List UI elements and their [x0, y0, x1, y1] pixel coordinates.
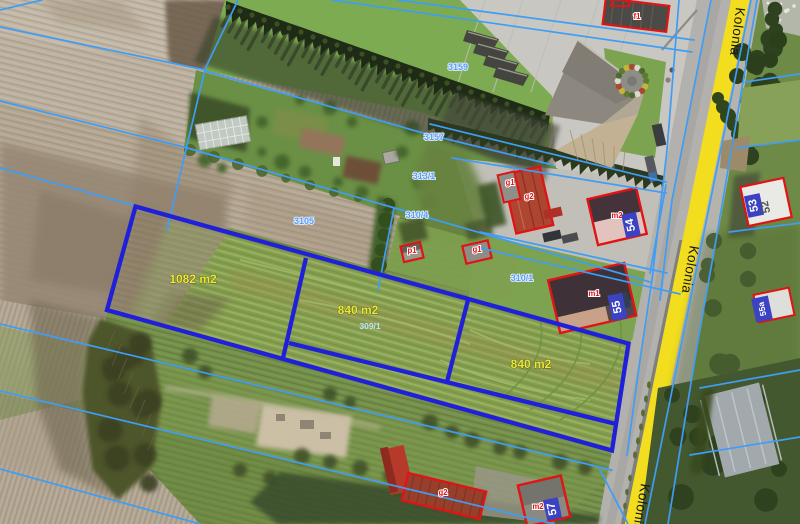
svg-text:840 m2: 840 m2 — [338, 303, 379, 317]
svg-text:3105: 3105 — [294, 216, 314, 226]
svg-text:m2: m2 — [532, 502, 544, 511]
svg-text:g2: g2 — [438, 488, 448, 497]
svg-text:3159: 3159 — [448, 62, 468, 72]
svg-text:f1: f1 — [634, 12, 642, 21]
svg-text:1082 m2: 1082 m2 — [169, 272, 217, 286]
svg-text:m1: m1 — [588, 289, 600, 298]
svg-text:g1: g1 — [505, 178, 515, 187]
svg-text:3157: 3157 — [424, 132, 444, 142]
svg-text:310/4: 310/4 — [406, 210, 429, 220]
svg-text:52: 52 — [759, 200, 773, 214]
svg-text:310/1: 310/1 — [511, 273, 534, 283]
svg-text:g2: g2 — [524, 192, 534, 201]
svg-text:840 m2: 840 m2 — [511, 357, 552, 371]
svg-text:p1: p1 — [407, 246, 417, 255]
svg-text:309/1: 309/1 — [359, 321, 381, 331]
svg-text:313/1: 313/1 — [413, 171, 436, 181]
svg-text:g1: g1 — [472, 245, 482, 254]
